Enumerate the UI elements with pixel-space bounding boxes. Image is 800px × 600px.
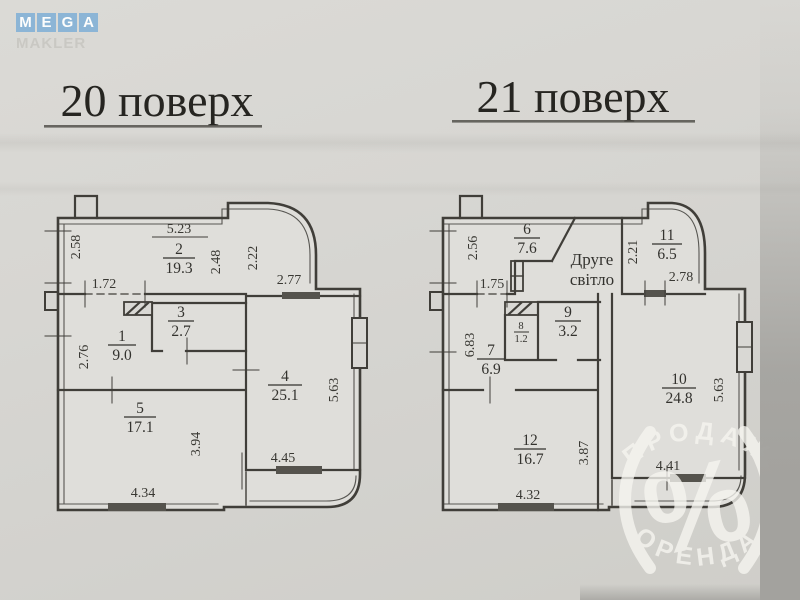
floorplan-drawing: 20 поверх 21 поверх 5.23	[0, 0, 800, 600]
dimension-label: 2.58	[69, 235, 84, 260]
room-area: 19.3	[165, 260, 192, 277]
room-area: 17.1	[126, 419, 153, 436]
room-area: 9.0	[112, 347, 132, 364]
dimension-label: 5.63	[712, 378, 727, 403]
void-note-line1: Друге	[571, 250, 614, 269]
scan-edge-shadow	[760, 0, 800, 600]
room-number: 9	[564, 304, 572, 321]
wall-notch	[45, 292, 58, 310]
scanned-floorplan-page: M E G A MAKLER 20 поверх 21 поверх	[0, 0, 800, 600]
dimension-label: 2.76	[77, 345, 92, 370]
room-area: 16.7	[516, 451, 543, 468]
dimension-label: 2.56	[466, 236, 481, 261]
dimension-label: 4.34	[131, 486, 156, 501]
room-area: 25.1	[271, 387, 298, 404]
dimension-label: 4.45	[271, 451, 296, 466]
room-number: 2	[175, 241, 183, 258]
wall-notch	[430, 292, 443, 310]
room-area: 6.5	[657, 246, 677, 263]
dimension-label: 3.87	[577, 441, 592, 466]
floor-20-title: 20 поверх	[61, 75, 254, 126]
scan-edge-shadow-bottom	[580, 584, 800, 600]
room-area: 3.2	[558, 323, 577, 340]
room-number: 6	[523, 221, 531, 238]
dimension-label: 1.72	[92, 277, 117, 292]
dimension-label: 2.77	[277, 273, 302, 288]
dimension-label: 2.21	[626, 240, 641, 265]
room-number: 4	[281, 368, 289, 385]
room-area: 1.2	[514, 334, 527, 345]
dimension-label: 5.63	[327, 378, 342, 403]
dimension-label: 2.48	[209, 250, 224, 275]
window-sill	[282, 292, 320, 299]
room-number: 7	[487, 342, 495, 359]
dimension-label: 1.75	[480, 277, 505, 292]
room-area: 24.8	[665, 390, 692, 407]
window-sill	[276, 466, 322, 474]
room-area: 7.6	[517, 240, 537, 257]
void-note-line2: світло	[570, 270, 614, 289]
dimension-label: 4.32	[516, 488, 541, 503]
room-number: 5	[136, 400, 144, 417]
window-sill	[498, 503, 554, 511]
dimension-label: 2.22	[246, 246, 261, 271]
room-area: 2.7	[171, 323, 191, 340]
dimension-label: 3.94	[189, 432, 204, 457]
floor-21-title: 21 поверх	[477, 71, 670, 122]
watermark-badge: ПРОДАЖ ОРЕНДА %	[617, 417, 778, 583]
room-number: 10	[671, 371, 687, 388]
room-number: 8	[518, 321, 523, 332]
title-underline	[44, 125, 262, 128]
dimension-label: 2.78	[669, 270, 694, 285]
room-number: 11	[660, 227, 675, 244]
room-number: 3	[177, 304, 185, 321]
chimney-shaft	[460, 196, 482, 218]
floor-20-plan	[45, 196, 367, 511]
window-sill	[108, 503, 166, 511]
dimension-label: 5.23	[167, 222, 192, 237]
room-number: 12	[522, 432, 538, 449]
window-sill	[644, 290, 666, 297]
room-number: 1	[118, 328, 126, 345]
room-area: 6.9	[481, 361, 501, 378]
chimney-shaft	[75, 196, 97, 218]
title-underline	[452, 120, 695, 123]
dimension-label: 6.83	[463, 333, 478, 358]
